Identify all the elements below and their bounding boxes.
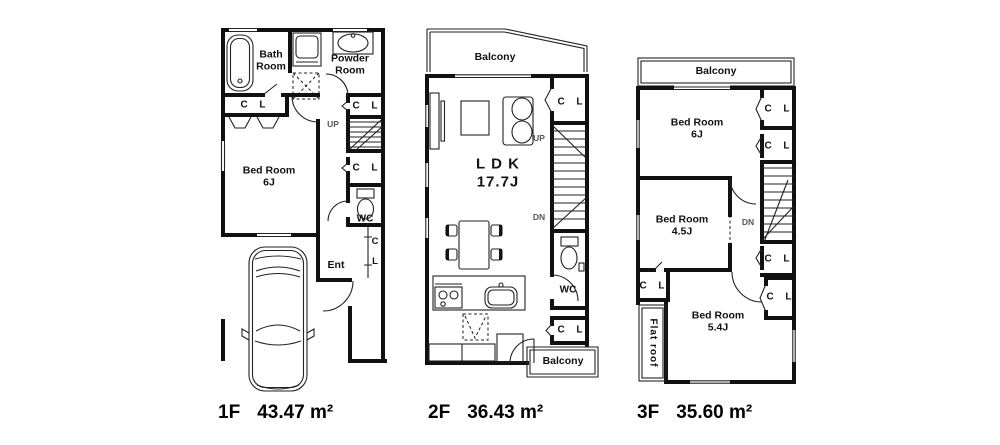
stairs-down-label: DN: [742, 218, 754, 228]
floor-area: 36.43 m²: [467, 402, 543, 423]
floor-name: 3F: [637, 402, 659, 423]
stairs-icon-3f: [762, 168, 794, 242]
closet-label: C L: [765, 103, 792, 114]
floor-area-label-2f: 2F36.43 m²: [428, 402, 543, 424]
closet-hanger-icon: [229, 117, 279, 128]
closet-label: C L: [353, 100, 380, 111]
room-label-ldk: L D K 17.7J: [476, 155, 520, 190]
floorplan-1f: Bath Room Powder Room C L Bed Room 6J UP…: [205, 13, 395, 403]
sink-icon: [333, 32, 373, 54]
tv-board-icon: [430, 93, 445, 149]
floor-area-label-3f: 3F35.60 m²: [637, 402, 752, 424]
toilet-icon-2f: [561, 237, 584, 271]
stairs-down-label: DN: [533, 213, 545, 223]
closet-label: C L: [558, 96, 585, 107]
stove-icon: [435, 284, 462, 308]
closet-label: C L: [765, 253, 792, 264]
room-label-bedroom-54j: Bed Room 5.4J: [692, 310, 745, 334]
bathtub-icon: [227, 35, 253, 91]
floorplan-2f-drawing: [415, 13, 605, 403]
floor-area-label-1f: 1F43.47 m²: [218, 402, 333, 424]
dining-table-icon: [446, 221, 502, 269]
washing-machine-icon: [293, 33, 321, 66]
flat-roof-label: Flat roof: [647, 319, 658, 368]
closet-label: C L: [640, 280, 667, 291]
floorplan-3f: Balcony Bed Room 6J C L C L DN Bed Room …: [630, 30, 805, 405]
wc-label: WC: [357, 213, 374, 224]
balcony-label: Balcony: [543, 356, 584, 368]
sofa-icon: [503, 97, 533, 145]
floor-area: 35.60 m²: [676, 402, 752, 423]
refrigerator-space-icon: [463, 314, 488, 340]
closet-label: C L: [353, 162, 380, 173]
closet-label: C L: [767, 291, 794, 302]
rug-icon: [461, 101, 489, 135]
floorplan-canvas: Bath Room Powder Room C L Bed Room 6J UP…: [0, 0, 1000, 445]
stairs-up-label: UP: [327, 120, 339, 130]
closet-label: C L: [241, 99, 268, 110]
room-label-bedroom-6j: Bed Room 6J: [243, 165, 296, 189]
floorplan-2f: Balcony L D K 17.7J C L UP DN WC C L Bal…: [415, 13, 605, 403]
stairs-icon-2f: [552, 125, 587, 229]
room-label-powder-room: Powder Room: [331, 53, 369, 77]
cupboard-icon: [429, 334, 523, 362]
room-label-bedroom-45j: Bed Room 4.5J: [656, 214, 709, 238]
room-label-bedroom-6j: Bed Room 6J: [671, 117, 724, 141]
wc-label: WC: [560, 284, 577, 295]
stairs-up-label: UP: [533, 134, 545, 144]
closet-label-vertical: C L: [372, 232, 379, 272]
stairs-icon-1f: [348, 120, 383, 151]
closet-label: C L: [765, 140, 792, 151]
door-marks-2f: [510, 87, 578, 363]
balcony-label: Balcony: [696, 66, 737, 78]
floor-name: 2F: [428, 402, 450, 423]
kitchen-sink-icon: [485, 283, 517, 308]
floor-area: 43.47 m²: [257, 402, 333, 423]
entrance-label: Ent: [328, 260, 345, 272]
floor-name: 1F: [218, 402, 240, 423]
balcony-label: Balcony: [475, 52, 516, 64]
closet-label: C L: [558, 324, 585, 335]
car-icon: [242, 247, 314, 391]
room-label-bathroom: Bath Room: [256, 49, 286, 73]
